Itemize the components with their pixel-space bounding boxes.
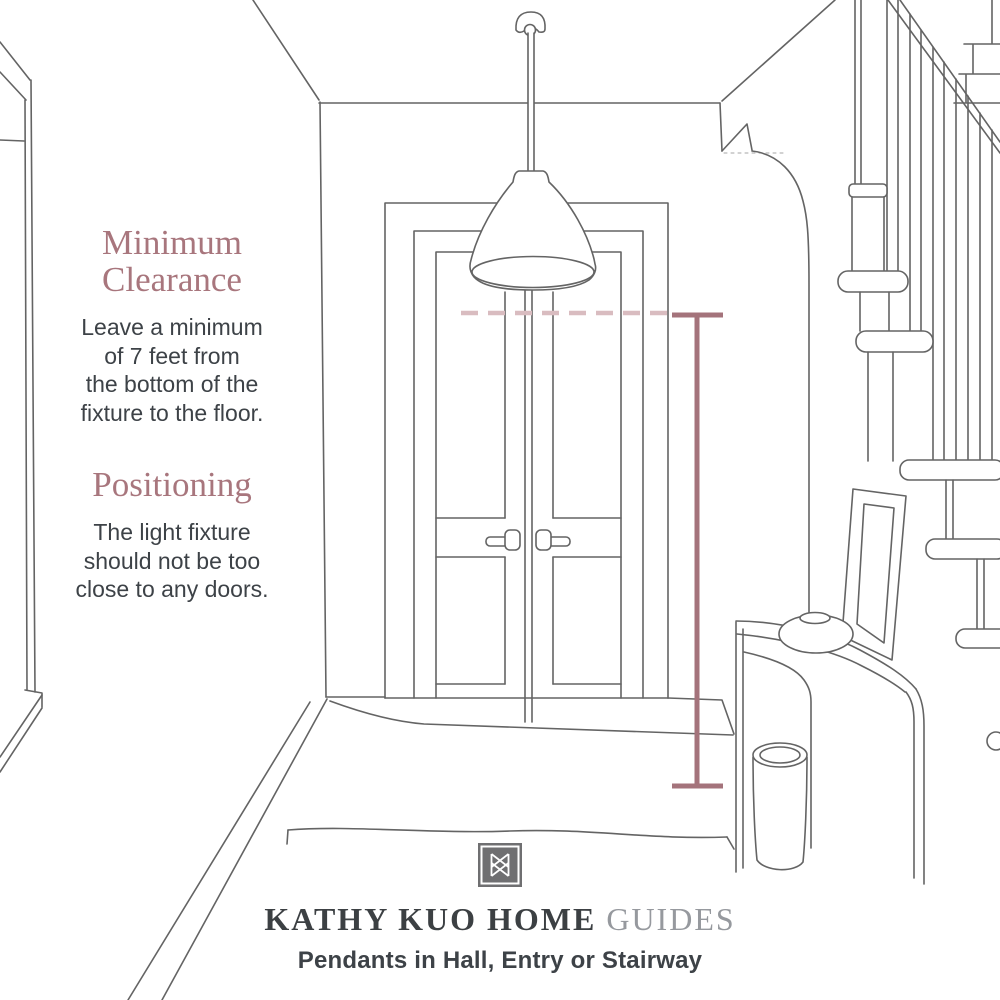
pendant-light-drawing [470, 12, 596, 290]
clearance-heading-line: Minimum [38, 224, 306, 261]
walls-and-ceiling-drawing [253, 0, 835, 735]
brand-suffix: GUIDES [606, 901, 735, 937]
stair-treads [838, 184, 1000, 750]
positioning-heading: Positioning [38, 466, 306, 503]
clearance-body: Leave a minimum of 7 feet from the botto… [38, 313, 306, 427]
positioning-body-line: close to any doors. [38, 575, 306, 604]
clearance-body-line: of 7 feet from [38, 342, 306, 371]
brand-name: KATHY KUO HOME [264, 901, 596, 937]
infographic-canvas: Minimum Clearance Leave a minimum of 7 f… [0, 0, 1000, 1000]
newel-post [855, 0, 861, 184]
kathy-kuo-home-logo-icon [478, 843, 522, 887]
positioning-body-line: should not be too [38, 547, 306, 576]
clearance-body-line: fixture to the floor. [38, 399, 306, 428]
brand-line: KATHY KUO HOME GUIDES [0, 901, 1000, 937]
measurement-line [672, 315, 723, 786]
positioning-body: The light fixture should not be too clos… [38, 518, 306, 604]
clearance-body-line: Leave a minimum [38, 313, 306, 342]
clearance-note: Minimum Clearance Leave a minimum of 7 f… [38, 224, 306, 427]
door-handles [486, 530, 570, 550]
bowl-drawing [779, 613, 853, 654]
guide-subtitle: Pendants in Hall, Entry or Stairway [0, 947, 1000, 975]
clearance-heading-line: Clearance [38, 261, 306, 298]
positioning-body-line: The light fixture [38, 518, 306, 547]
left-doorway-drawing [0, 42, 42, 772]
footer: KATHY KUO HOME GUIDES Pendants in Hall, … [0, 843, 1000, 975]
positioning-note: Positioning The light fixture should not… [38, 466, 306, 604]
clearance-body-line: the bottom of the [38, 370, 306, 399]
clearance-heading: Minimum Clearance [38, 224, 306, 298]
